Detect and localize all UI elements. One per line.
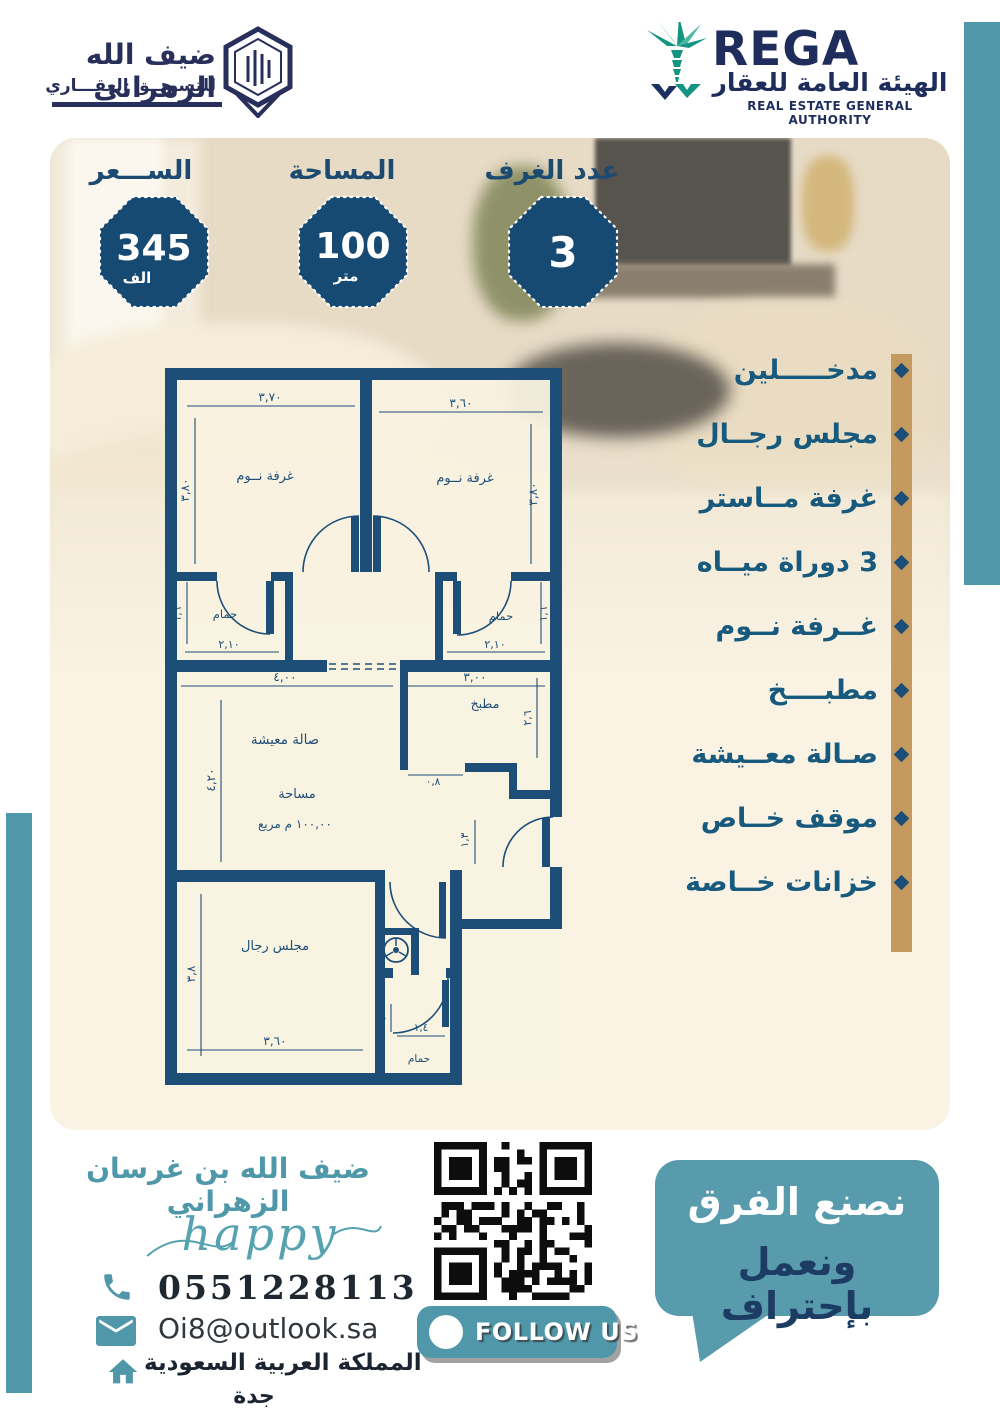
rooms-value: 3 [548,228,577,277]
left-teal-bar [6,813,32,1393]
room-label-bath-right: حمام [489,609,513,623]
feature-two-entrances: مدخـــــلين [734,349,912,391]
qr-code[interactable] [433,1142,593,1300]
feature-master-room: غرفة مــاستر [700,477,912,519]
dim-bath-right-height: ١,٦ [538,606,550,621]
diamond-bullet-icon [894,682,910,698]
phone-number[interactable]: 0551228113 [158,1268,418,1307]
diamond-bullet-icon [894,426,910,442]
entrance-threshold [327,660,400,672]
dim-bath-right-width: ٢,١٠ [484,638,505,651]
brand-underline [52,102,222,107]
rega-name-arabic: الهيئة العامة للعقار [710,68,950,97]
rega-name-english: REAL ESTATE GENERAL AUTHORITY [706,99,954,127]
diamond-bullet-icon [894,746,910,762]
diamond-bullet-icon [894,554,910,570]
dim-majlis-height: ٣,٨ [184,965,198,982]
dim-entry: ١,٣ [459,832,471,847]
city-label: جدة [144,1384,364,1409]
slogan-line-2: ونعمل بإحتراف [655,1240,939,1328]
area-badge: 100 متر [296,194,410,310]
floor-plan: غرفة نــوم غرفة نــوم حمام حمام مطبخ صال… [165,368,562,1085]
feature-label: غرفة مــاستر [700,483,878,514]
dim-bath-left-height: ١,٦ [172,606,184,621]
rooms-badge: 3 [506,194,620,310]
feature-label: مجلس رجــال [696,419,878,450]
follow-us-label: FOLLOW US [475,1318,638,1346]
area-value: 100 [315,226,390,267]
slogan-line-1: نصنع الفرق [655,1180,939,1224]
price-label: الســـعر [66,156,216,186]
dim-bath-left-width: ٢,١٠ [218,638,239,651]
dim-living-height: ٤,٢٠ [204,768,218,791]
dim-kitchen-opening: ٠,٨ [426,776,441,788]
country-label: المملكة العربية السعودية [144,1350,422,1376]
diamond-bullet-icon [894,810,910,826]
signature-text: happy [182,1207,339,1261]
feature-3-bathrooms: 3 دوراة ميــاه [697,541,912,583]
feature-bedroom: غــرفة نــوم [716,605,912,647]
diamond-bullet-icon [894,362,910,378]
room-label-kitchen: مطبخ [471,696,500,711]
feature-label: غــرفة نــوم [716,611,878,642]
room-label-area-value: ١٠٠,٠٠ م مربع [258,817,332,832]
feature-living-hall: صـالة معــيشة [691,733,912,775]
photo-vase [802,156,854,251]
feature-label: مطبــــخ [768,675,878,706]
feature-label: موقف خــاص [701,803,878,834]
dim-bed-right-height: ٣,٨٠ [526,482,540,505]
feature-label: صـالة معــيشة [691,739,878,770]
room-label-area-word: مساحة [278,787,316,802]
diamond-bullet-icon [894,874,910,890]
dim-living-width: ٤,٠٠ [273,670,296,684]
brand-subtitle: للتسويــق العقـــاري [44,76,216,96]
feature-mens-majlis: مجلس رجــال [696,413,912,455]
room-label-bath-left: حمام [213,607,237,621]
rooms-label: عدد الغرف [477,156,627,186]
follow-circle-icon [429,1315,463,1349]
follow-us-button[interactable]: FOLLOW US [417,1306,617,1358]
feature-private-tanks: خزانات خــاصة [685,861,912,903]
room-label-bath-bottom: حمام [408,1053,430,1065]
area-label: المساحة [267,156,417,186]
right-teal-bar [964,22,1000,585]
dim-majlis-width: ٣,٦٠ [263,1034,286,1048]
signature: happy [135,1198,385,1273]
dim-kitchen-height: ٢,٦ [521,710,534,725]
feature-label: خزانات خــاصة [685,867,878,898]
room-label-bedroom-left: غرفة نــوم [236,469,293,484]
brand-hexagon-logo-icon [221,26,295,118]
dim-bath-bottom-width: ١,٤ [414,1022,429,1034]
room-label-majlis: مجلس رجال [241,939,309,954]
dim-kitchen-width: ٣,٠٠ [463,670,486,684]
area-unit: متر [333,267,359,285]
feature-label: 3 دوراة ميــاه [697,547,878,578]
dim-bath-bottom-height: ١,٦ [377,1011,388,1025]
price-badge: 345 الف [97,194,211,310]
price-value: 345 [116,228,191,269]
room-label-living: صالة معيشة [251,732,319,748]
email-address[interactable]: Oi8@outlook.sa [158,1312,378,1345]
feature-private-parking: موقف خــاص [701,797,912,839]
dim-bed-left-height: ٣,٨٠ [178,478,192,501]
dim-bed-left-width: ٣,٧٠ [258,390,281,404]
rega-palm-logo-icon [645,22,709,108]
diamond-bullet-icon [894,618,910,634]
feature-kitchen: مطبــــخ [768,669,912,711]
home-icon [106,1352,140,1392]
feature-label: مدخـــــلين [734,355,878,386]
phone-icon [100,1270,134,1304]
dim-bed-right-width: ٣,٦٠ [449,396,472,410]
email-icon [96,1316,136,1346]
price-unit: الف [123,269,152,287]
diamond-bullet-icon [894,490,910,506]
room-label-bedroom-right: غرفة نــوم [436,471,493,486]
